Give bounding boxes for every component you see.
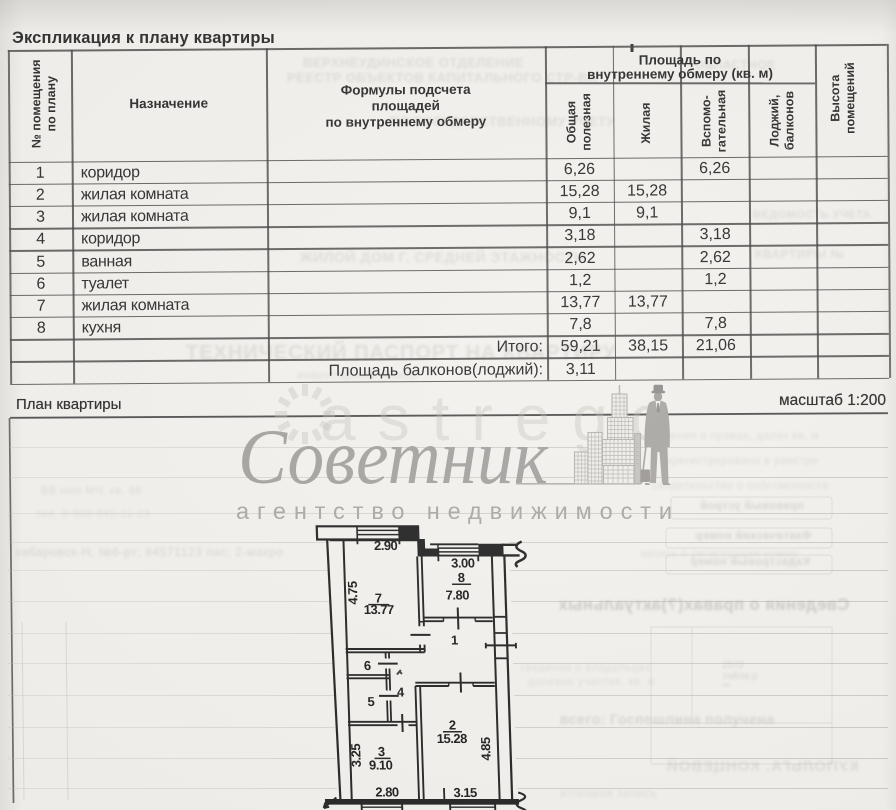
svg-text:15.28: 15.28: [437, 731, 468, 746]
svg-text:7.80: 7.80: [445, 588, 469, 603]
svg-text:5: 5: [367, 694, 374, 709]
svg-text:9.10: 9.10: [369, 758, 393, 773]
svg-text:1: 1: [451, 633, 458, 648]
svg-text:3.25: 3.25: [348, 744, 364, 768]
svg-text:4.75: 4.75: [345, 581, 361, 605]
svg-text:3.15: 3.15: [453, 785, 477, 800]
svg-text:2.90: 2.90: [374, 538, 398, 553]
svg-text:3.00: 3.00: [451, 555, 475, 570]
svg-text:6: 6: [364, 658, 371, 673]
svg-text:8: 8: [458, 570, 465, 585]
svg-text:2.80: 2.80: [375, 784, 399, 799]
svg-text:4.85: 4.85: [478, 737, 494, 761]
